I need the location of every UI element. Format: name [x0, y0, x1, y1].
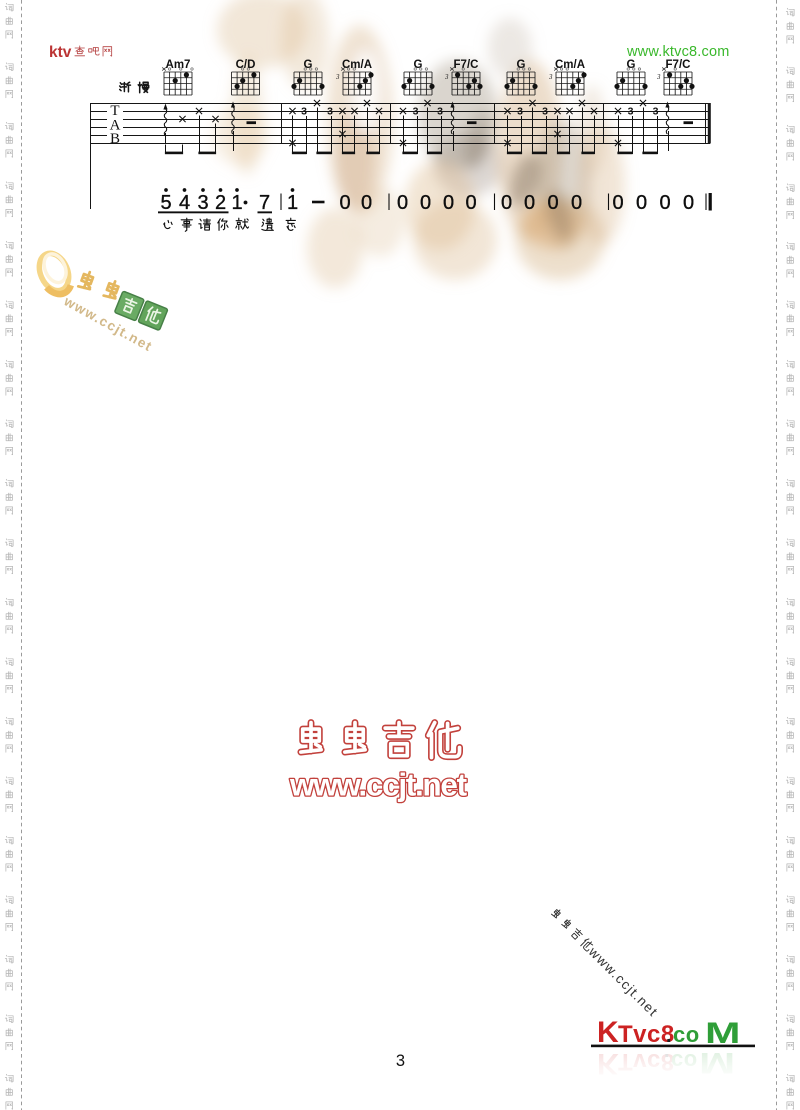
svg-text:Cm/A: Cm/A — [342, 59, 372, 71]
svg-text:.: . — [666, 1025, 672, 1047]
svg-text:0: 0 — [361, 192, 372, 214]
svg-text:K: K — [597, 1016, 619, 1049]
svg-text:3: 3 — [542, 106, 548, 118]
svg-text:0: 0 — [443, 192, 454, 214]
svg-text:2: 2 — [215, 192, 226, 214]
svg-text:3: 3 — [197, 192, 208, 214]
svg-text:0: 0 — [524, 192, 535, 214]
svg-text:www.ccjt.net: www.ccjt.net — [585, 944, 661, 1020]
svg-text:3: 3 — [656, 73, 661, 81]
svg-text:0: 0 — [420, 192, 431, 214]
svg-text:C/D: C/D — [236, 59, 256, 71]
svg-text:0: 0 — [659, 192, 670, 214]
svg-text:M: M — [705, 1016, 740, 1049]
svg-text:3: 3 — [628, 106, 634, 118]
svg-text:G: G — [517, 59, 526, 71]
svg-text:3: 3 — [444, 73, 449, 81]
svg-text:F7/C: F7/C — [454, 59, 479, 71]
svg-text:www.ktvc8.com: www.ktvc8.com — [626, 44, 730, 60]
svg-text:Am7: Am7 — [166, 59, 191, 71]
svg-text:co: co — [673, 1022, 700, 1047]
svg-text:0: 0 — [571, 192, 582, 214]
svg-text:www.ccjt.net: www.ccjt.net — [289, 767, 468, 803]
svg-text:1: 1 — [231, 192, 242, 214]
svg-text:3: 3 — [396, 1052, 405, 1070]
svg-text:3: 3 — [653, 106, 659, 118]
svg-text:0: 0 — [465, 192, 476, 214]
svg-text:3: 3 — [413, 106, 419, 118]
svg-text:3: 3 — [517, 106, 523, 118]
svg-text:G: G — [414, 59, 423, 71]
svg-text:0: 0 — [547, 192, 558, 214]
svg-text:5: 5 — [160, 192, 171, 214]
svg-text:3: 3 — [327, 106, 333, 118]
svg-text:G: G — [627, 59, 636, 71]
svg-text:4: 4 — [179, 192, 190, 214]
svg-text:0: 0 — [636, 192, 647, 214]
svg-text:0: 0 — [612, 192, 623, 214]
svg-text:3: 3 — [301, 106, 307, 118]
svg-text:ktv: ktv — [49, 44, 72, 61]
svg-text:G: G — [304, 59, 313, 71]
svg-text:3: 3 — [437, 106, 443, 118]
svg-text:3: 3 — [335, 73, 340, 81]
svg-text:B: B — [110, 131, 120, 147]
svg-text:Cm/A: Cm/A — [555, 59, 585, 71]
svg-text:0: 0 — [397, 192, 408, 214]
svg-text:F7/C: F7/C — [666, 59, 691, 71]
svg-text:1: 1 — [287, 192, 298, 214]
svg-text:3: 3 — [548, 73, 553, 81]
svg-text:0: 0 — [339, 192, 350, 214]
svg-text:7: 7 — [259, 192, 270, 214]
svg-text:0: 0 — [501, 192, 512, 214]
svg-text:0: 0 — [683, 192, 694, 214]
